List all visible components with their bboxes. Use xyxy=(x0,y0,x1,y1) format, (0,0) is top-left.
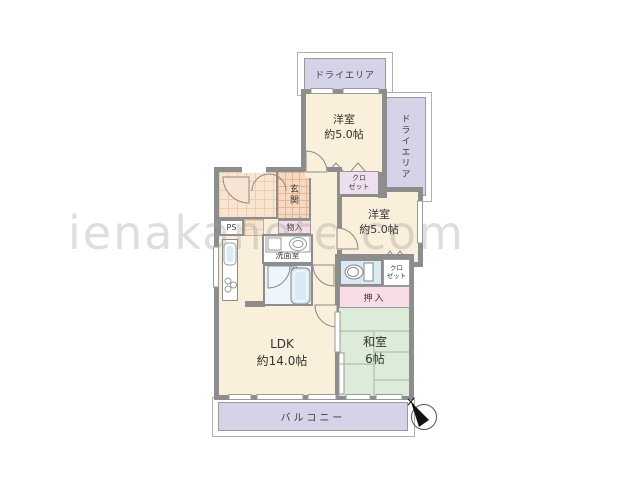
bedroom-mid-label: 洋室 約5.0帖 xyxy=(340,207,418,238)
door-arc-ldk xyxy=(315,305,337,327)
wall-stub xyxy=(245,301,265,307)
door-arc-bath xyxy=(268,266,290,288)
kitchen-sink-icon xyxy=(224,243,236,265)
door-arc-bedroom-top xyxy=(306,151,327,172)
bedroom-top-label: 洋室 約5.0帖 xyxy=(306,112,382,143)
washroom-fixtures xyxy=(266,236,310,252)
ldk-label: LDK 約14.0帖 xyxy=(224,336,340,370)
door-arc-porch xyxy=(223,177,249,203)
stove-icon xyxy=(225,278,237,292)
compass-north-icon xyxy=(408,398,437,430)
wall-patch xyxy=(378,172,387,198)
washing-machine-icon xyxy=(268,238,281,250)
toilet-icon xyxy=(345,263,373,281)
floor-plan: ドライエリア ドライエリア バルコニー 玄関 PS 物入 洗面室 浴室 クロ ゼ… xyxy=(0,0,640,480)
door-arc-washroom xyxy=(313,265,334,286)
plan-symbols xyxy=(0,0,640,480)
door-arc-shoebox-right xyxy=(269,174,286,191)
door-arc-shoebox-left xyxy=(252,174,269,191)
japanese-room-label: 和室 6帖 xyxy=(344,334,406,368)
bathtub-icon xyxy=(291,268,310,304)
